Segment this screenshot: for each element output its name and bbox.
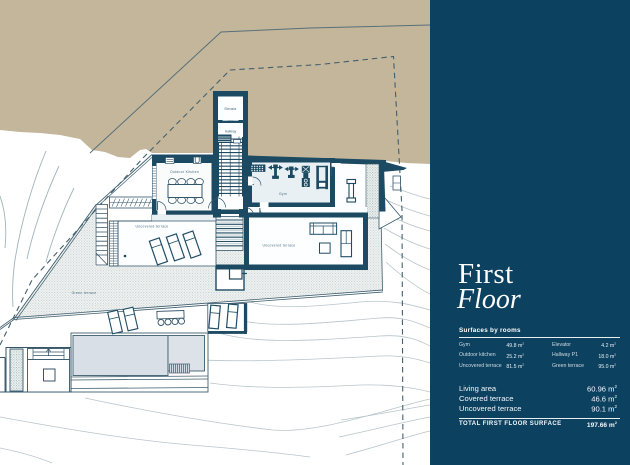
svg-text:Outdoor Kitchen: Outdoor Kitchen: [170, 170, 199, 174]
svg-text:Uncovered terrace: Uncovered terrace: [136, 225, 169, 229]
svg-text:Hallway: Hallway: [225, 130, 237, 134]
svg-text:Gym: Gym: [279, 192, 287, 196]
svg-text:Green terrace: Green terrace: [72, 291, 97, 295]
svg-text:Uncovered terrace: Uncovered terrace: [263, 244, 296, 248]
svg-text:Elevator: Elevator: [224, 107, 237, 111]
